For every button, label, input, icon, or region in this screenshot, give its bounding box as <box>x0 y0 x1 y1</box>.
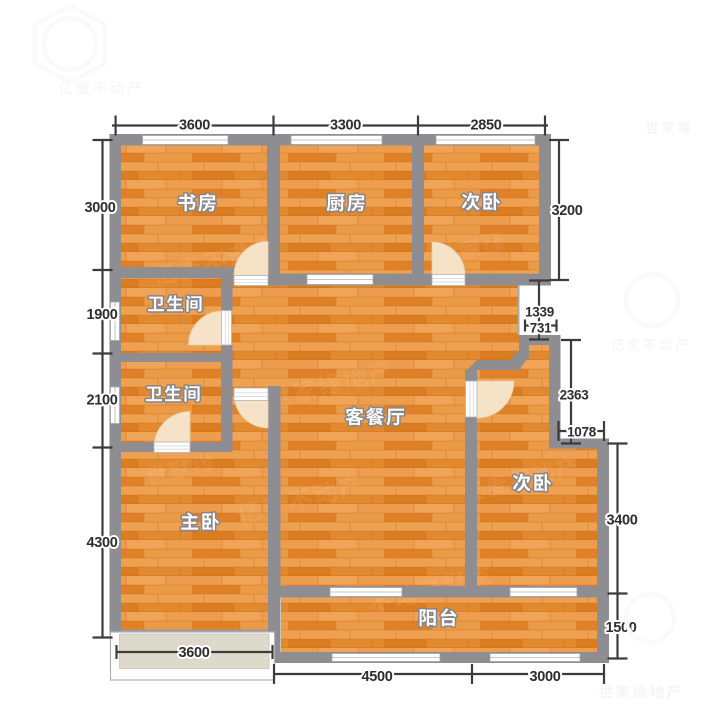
svg-text:3400: 3400 <box>606 513 637 529</box>
svg-text:3600: 3600 <box>179 118 210 134</box>
svg-text:1900: 1900 <box>86 307 117 323</box>
svg-text:1078: 1078 <box>567 424 597 439</box>
svg-text:2363: 2363 <box>560 387 590 402</box>
svg-text:4300: 4300 <box>86 535 117 551</box>
svg-text:3200: 3200 <box>551 203 582 219</box>
svg-text:731: 731 <box>530 320 552 335</box>
svg-text:4500: 4500 <box>361 669 392 685</box>
svg-text:1339: 1339 <box>525 304 554 319</box>
svg-text:3000: 3000 <box>84 200 115 216</box>
svg-text:2850: 2850 <box>470 118 501 134</box>
svg-text:3300: 3300 <box>330 118 361 134</box>
svg-text:2100: 2100 <box>86 393 117 409</box>
svg-text:3000: 3000 <box>529 669 560 685</box>
svg-text:3600: 3600 <box>178 645 209 661</box>
